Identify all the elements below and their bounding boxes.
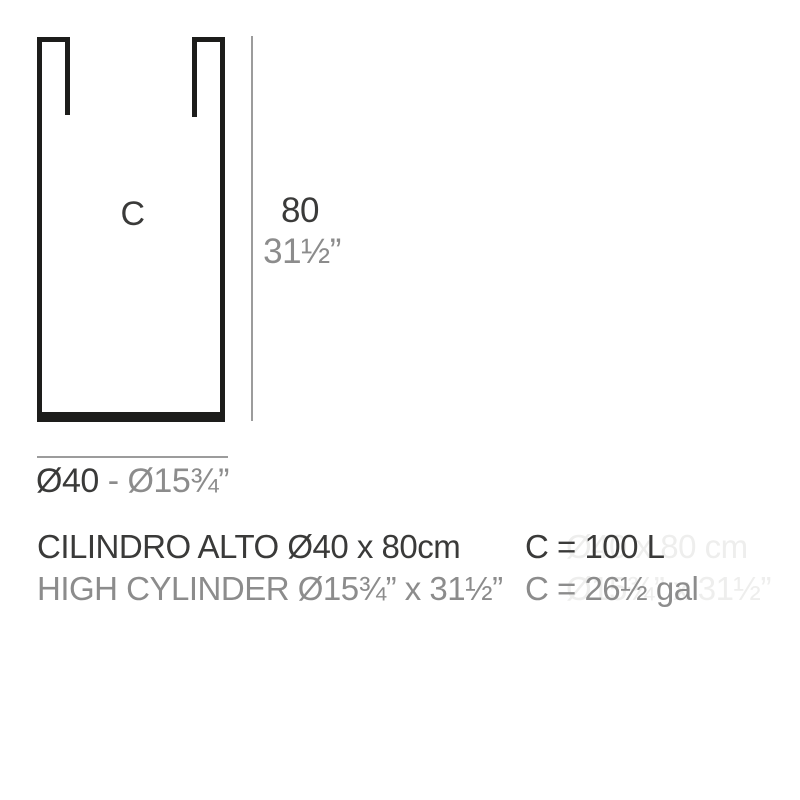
product-name-imperial: HIGH CYLINDER Ø15¾” x 31½” — [37, 572, 503, 605]
vessel-left-wall — [37, 37, 42, 422]
vessel-right-wall — [220, 37, 225, 422]
capacity-gallons-label: C = 26½ gal — [525, 572, 698, 605]
vessel-base — [37, 412, 225, 422]
product-dimension-sheet: C 80 31½” Ø40 - Ø15¾” CILINDRO ALTO Ø40 … — [0, 0, 800, 800]
height-cm-label: 80 — [270, 193, 330, 228]
capacity-liters-label: C = 100 L — [525, 530, 665, 563]
vessel-inner-wall-left — [65, 37, 70, 115]
diameter-cm-label: Ø40 — [36, 462, 99, 500]
height-dimension-line — [251, 36, 253, 421]
diameter-separator: - — [99, 462, 128, 500]
diameter-inches-label: Ø15¾” — [127, 462, 228, 500]
product-name-metric: CILINDRO ALTO Ø40 x 80cm — [37, 530, 460, 563]
model-letter: C — [105, 197, 160, 231]
diameter-label: Ø40 - Ø15¾” — [36, 464, 229, 498]
diameter-dimension-line — [37, 456, 228, 458]
vessel-inner-wall-right — [192, 37, 197, 117]
height-inches-label: 31½” — [252, 234, 352, 269]
